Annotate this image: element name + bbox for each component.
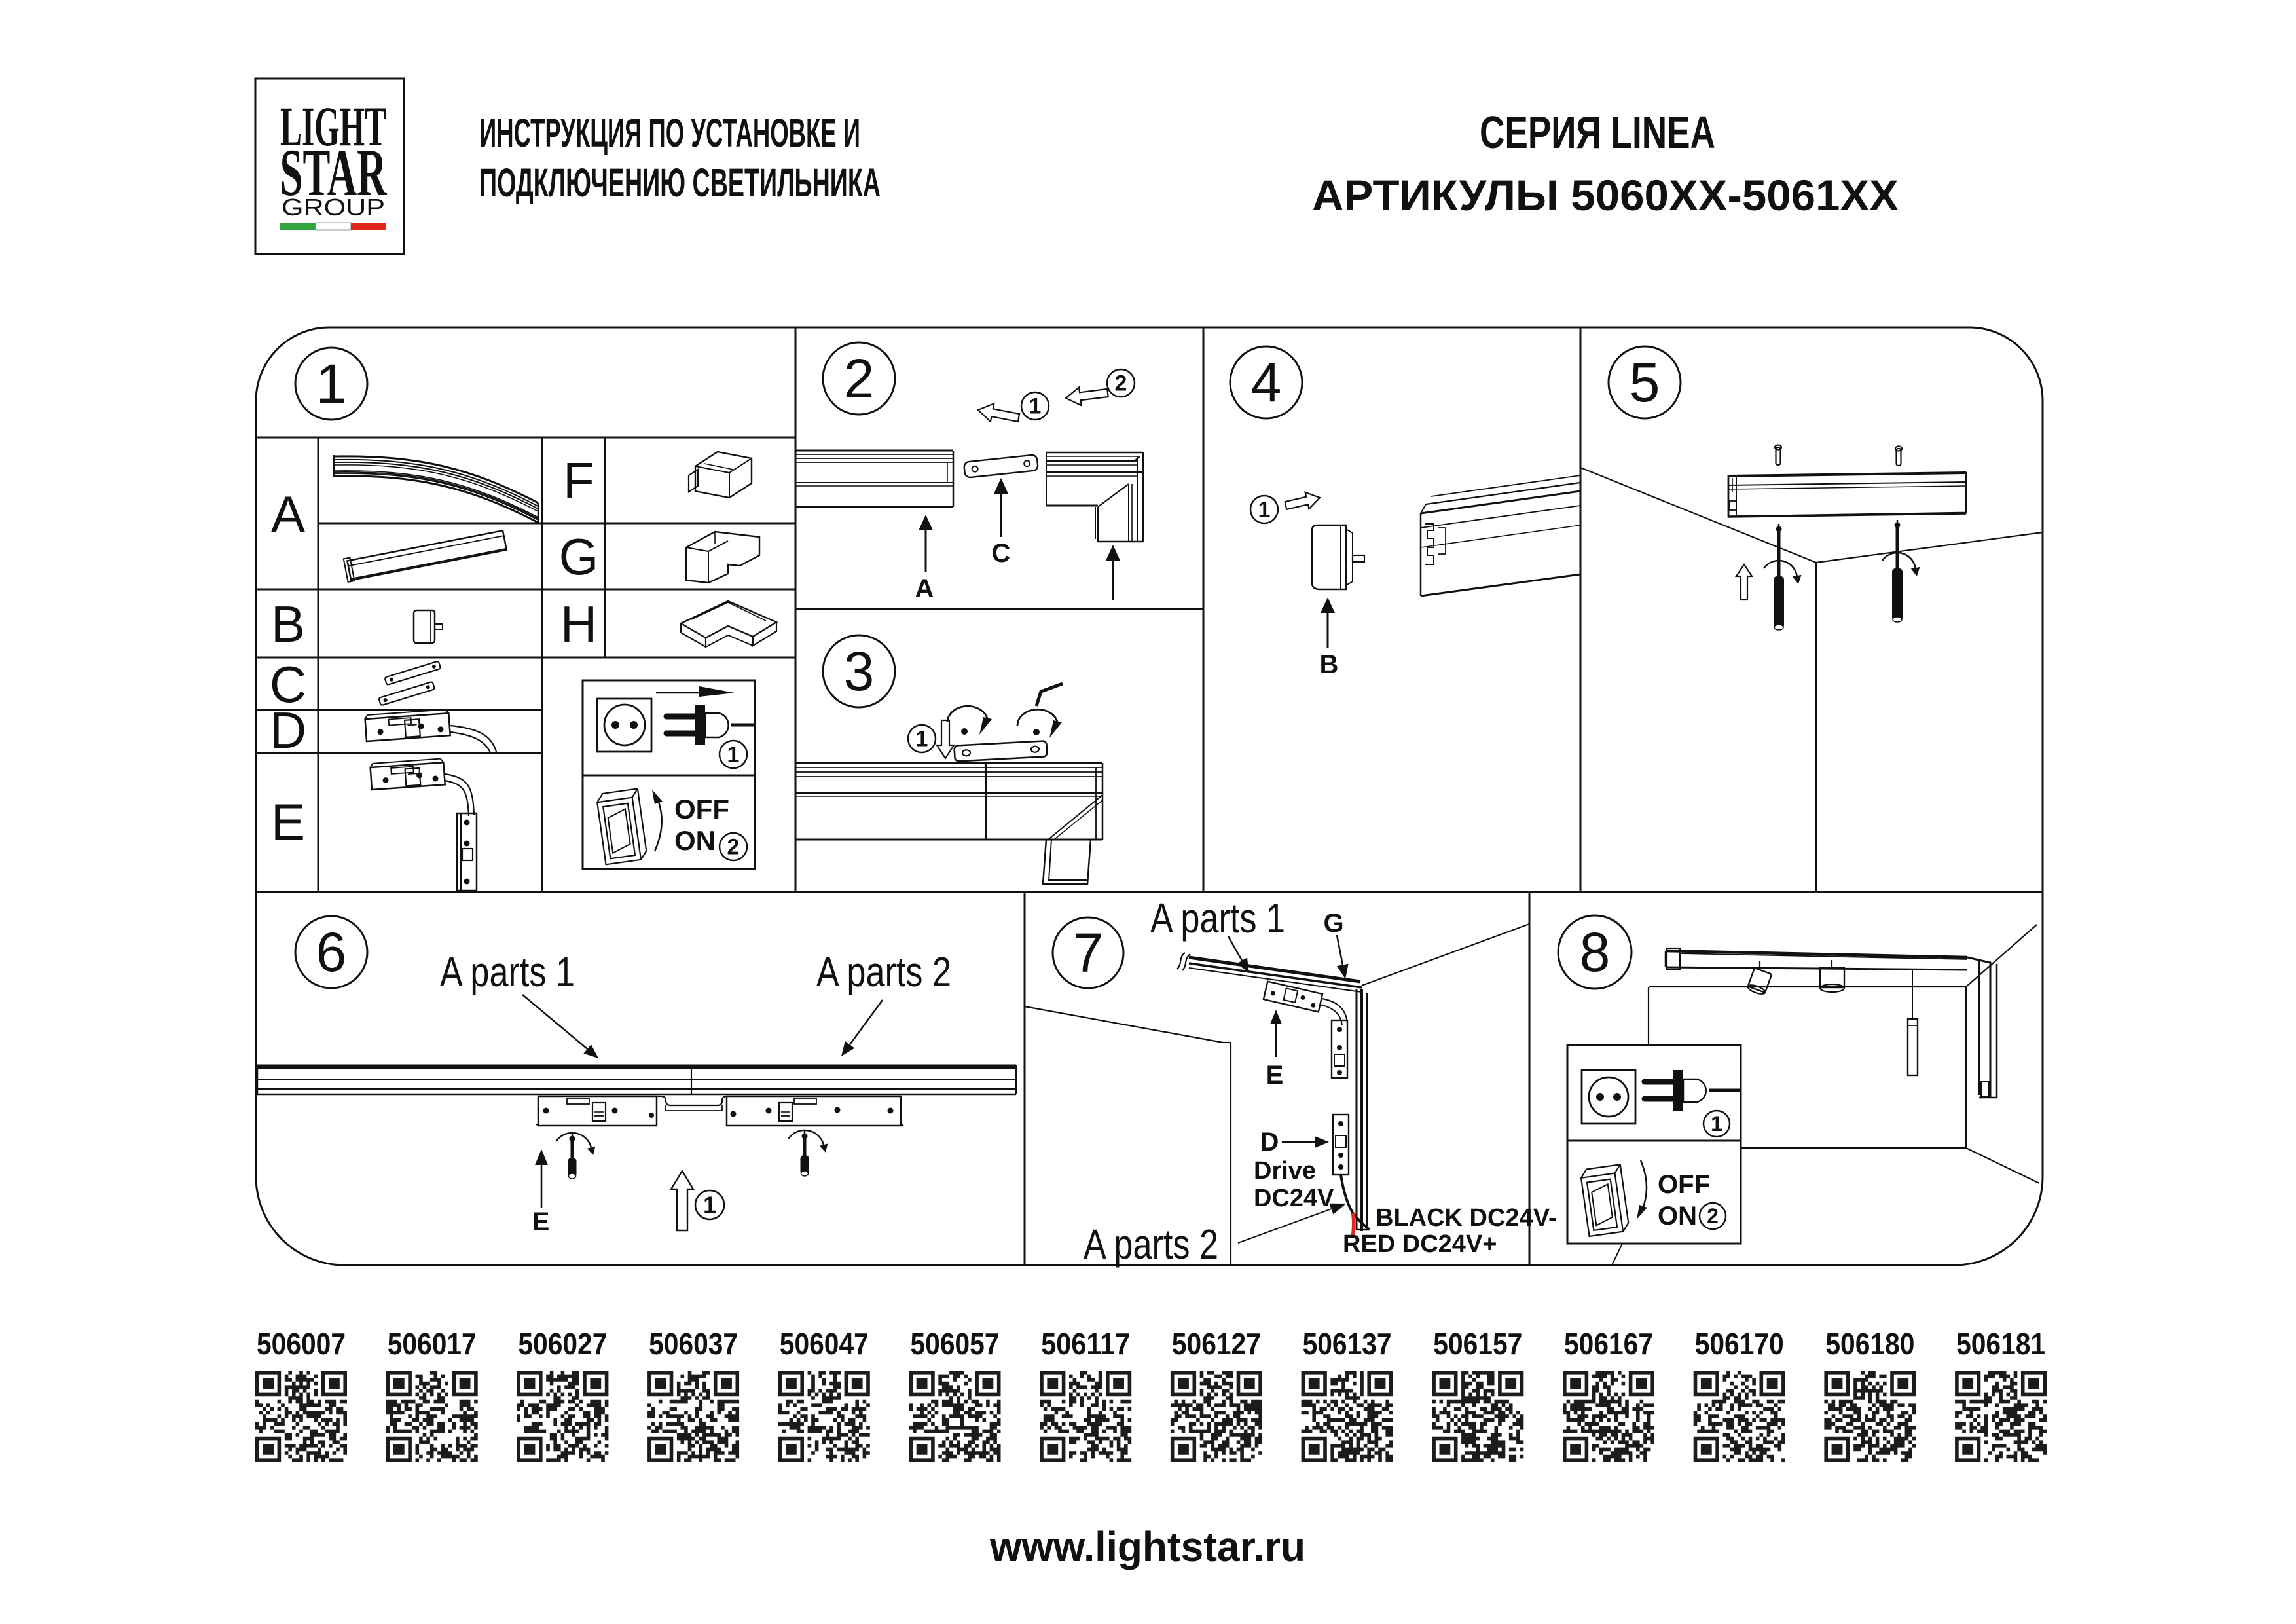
svg-text:506017: 506017 [388, 1327, 477, 1361]
svg-text:F: F [563, 452, 594, 509]
svg-text:A parts 1: A parts 1 [440, 948, 575, 995]
svg-text:2: 2 [727, 835, 740, 860]
svg-text:506180: 506180 [1825, 1327, 1914, 1361]
svg-text:2: 2 [1115, 371, 1127, 396]
svg-text:506007: 506007 [257, 1327, 346, 1361]
svg-text:4: 4 [1251, 352, 1282, 413]
svg-text:E: E [532, 1208, 550, 1236]
svg-text:506137: 506137 [1303, 1327, 1392, 1361]
svg-text:D: D [270, 701, 306, 759]
svg-text:OFF: OFF [1658, 1170, 1710, 1199]
svg-text:506167: 506167 [1564, 1327, 1653, 1361]
svg-text:H: H [560, 595, 597, 653]
svg-text:ПОДКЛЮЧЕНИЮ СВЕТИЛЬНИКА: ПОДКЛЮЧЕНИЮ СВЕТИЛЬНИКА [479, 160, 881, 205]
svg-text:6: 6 [316, 921, 347, 983]
svg-text:B: B [1320, 650, 1339, 679]
svg-text:СЕРИЯ LINEA: СЕРИЯ LINEA [1480, 107, 1715, 158]
svg-text:1: 1 [727, 743, 740, 767]
svg-text:B: B [271, 595, 305, 653]
svg-text:DC24V: DC24V [1254, 1185, 1334, 1212]
svg-text:506170: 506170 [1695, 1327, 1784, 1361]
svg-text:1: 1 [1029, 394, 1042, 419]
svg-text:A: A [271, 485, 305, 543]
svg-text:ON: ON [674, 825, 716, 856]
svg-text:A parts 2: A parts 2 [1084, 1221, 1218, 1268]
svg-text:RED DC24V+: RED DC24V+ [1343, 1230, 1497, 1258]
svg-text:A parts 1: A parts 1 [1150, 895, 1285, 942]
svg-text:www.lightstar.ru: www.lightstar.ru [989, 1523, 1305, 1570]
svg-text:2: 2 [1707, 1204, 1719, 1228]
svg-text:GROUP: GROUP [282, 194, 385, 221]
svg-text:OFF: OFF [674, 794, 729, 824]
svg-text:АРТИКУЛЫ 5060XX-5061XX: АРТИКУЛЫ 5060XX-5061XX [1312, 171, 1899, 219]
svg-text:506027: 506027 [518, 1327, 607, 1361]
svg-text:2: 2 [844, 348, 875, 409]
svg-text:1: 1 [1258, 498, 1271, 523]
svg-text:C: C [992, 539, 1011, 568]
svg-text:ИНСТРУКЦИЯ ПО УСТАНОВКЕ И: ИНСТРУКЦИЯ ПО УСТАНОВКЕ И [479, 111, 860, 155]
svg-text:506037: 506037 [649, 1327, 738, 1361]
svg-text:3: 3 [844, 640, 875, 702]
svg-text:D: D [1260, 1128, 1279, 1156]
svg-text:7: 7 [1073, 922, 1104, 984]
svg-text:G: G [1323, 909, 1343, 938]
svg-text:5: 5 [1630, 352, 1660, 413]
svg-text:A: A [915, 574, 934, 603]
svg-text:506117: 506117 [1041, 1327, 1130, 1361]
svg-text:1: 1 [703, 1191, 716, 1218]
svg-text:506181: 506181 [1956, 1327, 2045, 1361]
svg-text:506127: 506127 [1172, 1327, 1261, 1361]
svg-text:ON: ON [1658, 1202, 1697, 1230]
svg-text:8: 8 [1580, 921, 1611, 983]
svg-text:E: E [271, 793, 305, 851]
svg-text:1: 1 [1711, 1112, 1722, 1135]
svg-text:1: 1 [316, 353, 347, 415]
svg-text:1: 1 [916, 727, 928, 752]
svg-text:Drive: Drive [1254, 1157, 1316, 1185]
svg-text:BLACK DC24V-: BLACK DC24V- [1376, 1204, 1557, 1232]
svg-text:506057: 506057 [911, 1327, 1000, 1361]
svg-text:G: G [559, 528, 599, 585]
svg-text:506047: 506047 [780, 1327, 869, 1361]
svg-text:E: E [1266, 1061, 1284, 1090]
svg-text:A parts 2: A parts 2 [816, 948, 951, 995]
svg-text:506157: 506157 [1433, 1327, 1522, 1361]
